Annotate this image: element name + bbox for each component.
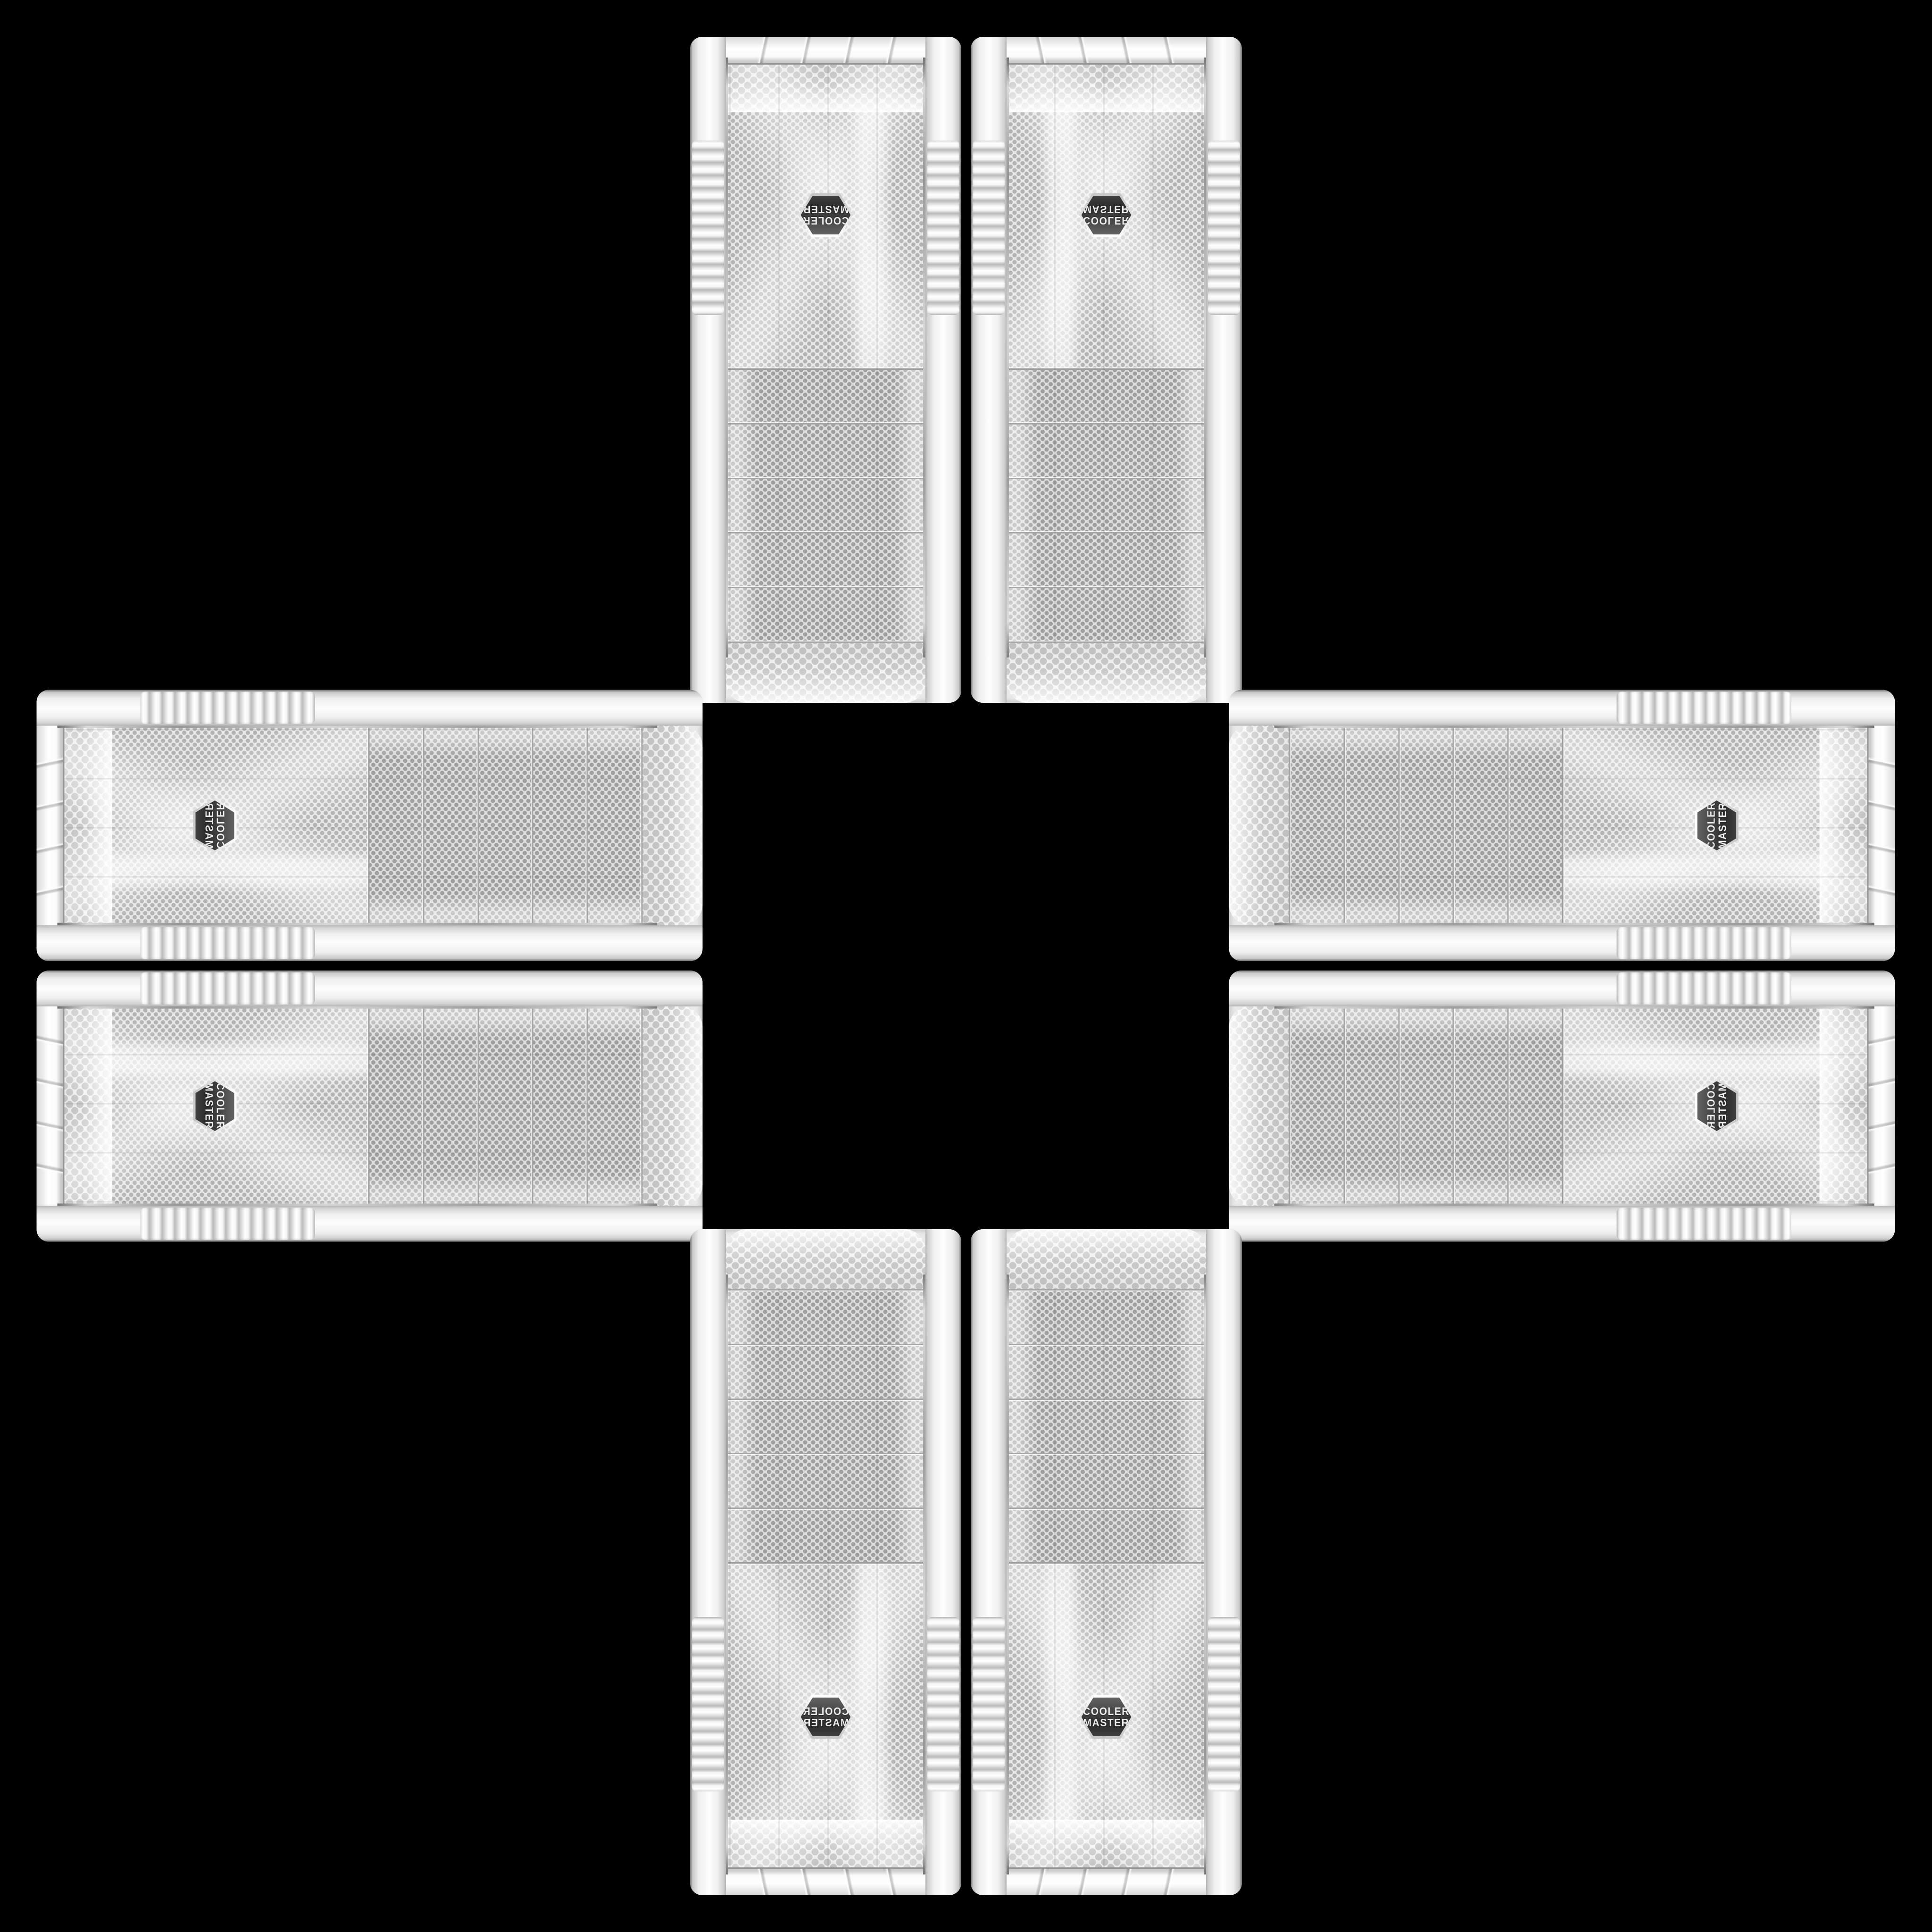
chrome-trim-left xyxy=(1007,1274,1009,1874)
cooler-master-badge-face: COOLER MASTER xyxy=(1082,1698,1132,1736)
drive-bay-slat xyxy=(1007,533,1206,588)
bottom-base-bar xyxy=(726,37,925,65)
front-face: COOLER MASTER xyxy=(726,37,925,703)
front-face: COOLER MASTER xyxy=(1229,1007,1895,1206)
badge-line-cooler: COOLER xyxy=(215,802,226,849)
drive-bay-slat xyxy=(726,533,925,588)
drive-bay-slat xyxy=(424,1007,479,1206)
grip-ribs xyxy=(1617,1208,1791,1240)
chrome-trim-right xyxy=(58,726,658,728)
case-front-panel-left-top: COOLER MASTER xyxy=(37,690,703,961)
chrome-trim-left xyxy=(58,1007,658,1009)
drive-bay-slat xyxy=(726,1399,925,1453)
grip-ribs xyxy=(927,141,959,315)
badge-line-cooler: COOLER xyxy=(215,1083,226,1130)
curved-mesh-cap xyxy=(643,726,703,925)
cooler-master-badge-face: COOLER MASTER xyxy=(1082,196,1132,234)
chrome-trim-right xyxy=(1274,726,1874,728)
badge-line-master: MASTER xyxy=(803,204,849,215)
chrome-trim-right xyxy=(58,1204,658,1206)
grip-ribs xyxy=(692,1617,724,1791)
bottom-base-bar xyxy=(37,1007,65,1206)
bottom-base-bar xyxy=(1867,1007,1895,1206)
drive-bay-slat xyxy=(1007,1399,1206,1453)
grip-ribs xyxy=(141,1208,315,1240)
case-front-panel-left-bottom: COOLER MASTER xyxy=(37,971,703,1242)
drive-bay-slat xyxy=(726,1289,925,1344)
drive-bay-slat xyxy=(1507,726,1562,925)
bottom-base-bar xyxy=(726,1867,925,1895)
curved-mesh-cap xyxy=(1229,726,1289,925)
drive-bay-slats xyxy=(726,1289,925,1562)
badge-line-cooler: COOLER xyxy=(1706,802,1717,849)
cooler-master-badge-face: COOLER MASTER xyxy=(196,1081,234,1131)
drive-bay-slat xyxy=(370,726,425,925)
cooler-master-badge-face: COOLER MASTER xyxy=(1698,1081,1736,1131)
lower-mesh-strip xyxy=(1820,726,1870,925)
chrome-trim-left xyxy=(1007,58,1009,658)
chrome-trim-left xyxy=(1274,1007,1874,1009)
bottom-base-bar xyxy=(1867,726,1895,925)
badge-line-master: MASTER xyxy=(204,802,215,849)
drive-bay-slats xyxy=(370,1007,643,1206)
cooler-master-badge-face: COOLER MASTER xyxy=(1698,800,1736,850)
front-face: COOLER MASTER xyxy=(1007,37,1206,703)
side-rail-right xyxy=(690,37,726,703)
badge-line-master: MASTER xyxy=(803,1717,849,1728)
panel-collage-scene: COOLER MASTER xyxy=(0,0,1932,1932)
front-face: COOLER MASTER xyxy=(726,1229,925,1895)
drive-bay-slat xyxy=(726,588,925,643)
chrome-trim-right xyxy=(726,58,728,658)
grip-ribs xyxy=(973,141,1005,315)
drive-bay-slat xyxy=(1007,425,1206,479)
grip-ribs xyxy=(1208,1617,1240,1791)
grip-ribs xyxy=(141,973,315,1005)
chrome-trim-left xyxy=(923,1274,925,1874)
curved-mesh-cap xyxy=(726,643,925,703)
side-rail-right xyxy=(1229,690,1895,726)
drive-bay-slat xyxy=(726,370,925,425)
drive-bay-slat xyxy=(726,425,925,479)
front-face: COOLER MASTER xyxy=(37,1007,703,1206)
badge-line-cooler: COOLER xyxy=(1083,1706,1130,1717)
curved-mesh-cap xyxy=(1229,1007,1289,1206)
drive-bay-slat xyxy=(588,726,643,925)
grip-ribs xyxy=(141,927,315,959)
bottom-base-bar xyxy=(1007,1867,1206,1895)
drive-bay-slats xyxy=(726,370,925,643)
grip-ribs xyxy=(1617,692,1791,724)
badge-line-cooler: COOLER xyxy=(1083,215,1130,226)
case-front-panel-bottom-left: COOLER MASTER xyxy=(690,1229,961,1895)
drive-bay-slat xyxy=(588,1007,643,1206)
case-front-panel-right-top: COOLER MASTER xyxy=(1229,690,1895,961)
drive-bay-slats xyxy=(1289,726,1562,925)
case-front-panel-bottom-right: COOLER MASTER xyxy=(971,1229,1242,1895)
drive-bay-slat xyxy=(370,1007,425,1206)
drive-bay-slat xyxy=(1007,1507,1206,1562)
cooler-master-badge-face: COOLER MASTER xyxy=(801,1698,851,1736)
drive-bay-slat xyxy=(479,726,533,925)
chrome-trim-left xyxy=(923,58,925,658)
side-rail-left xyxy=(1229,971,1895,1007)
lower-mesh-strip xyxy=(726,62,925,112)
drive-bay-slat xyxy=(1453,1007,1507,1206)
drive-bay-slat xyxy=(424,726,479,925)
lower-mesh-strip xyxy=(62,1007,112,1206)
badge-line-master: MASTER xyxy=(1717,1083,1728,1129)
side-rail-right xyxy=(37,1206,703,1242)
grip-ribs xyxy=(1208,141,1240,315)
drive-bay-slat xyxy=(1507,1007,1562,1206)
chrome-trim-right xyxy=(1204,1274,1206,1874)
drive-bay-slat xyxy=(1007,370,1206,425)
drive-bay-slat xyxy=(1343,1007,1398,1206)
cooler-master-badge-face: COOLER MASTER xyxy=(196,800,234,850)
drive-bay-slat xyxy=(1007,1453,1206,1507)
drive-bay-slats xyxy=(370,726,643,925)
front-face: COOLER MASTER xyxy=(37,726,703,925)
drive-bay-slats xyxy=(1289,1007,1562,1206)
drive-bay-slat xyxy=(1007,479,1206,534)
drive-bay-slat xyxy=(479,1007,533,1206)
curved-mesh-cap xyxy=(1007,643,1206,703)
side-rail-left xyxy=(37,925,703,961)
drive-bay-slats xyxy=(1007,370,1206,643)
side-rail-left xyxy=(925,37,961,703)
side-rail-right xyxy=(1229,1206,1895,1242)
chrome-trim-left xyxy=(58,923,658,925)
drive-bay-slat xyxy=(1398,726,1453,925)
grip-ribs xyxy=(692,141,724,315)
cooler-master-badge-face: COOLER MASTER xyxy=(801,196,851,234)
drive-bay-slat xyxy=(726,1507,925,1562)
side-rail-right xyxy=(1206,37,1242,703)
side-rail-right xyxy=(690,1229,726,1895)
front-face: COOLER MASTER xyxy=(1229,726,1895,925)
drive-bay-slat xyxy=(1453,726,1507,925)
chrome-trim-right xyxy=(1204,58,1206,658)
drive-bay-slat xyxy=(1007,1289,1206,1344)
drive-bay-slat xyxy=(1007,1344,1206,1399)
badge-line-cooler: COOLER xyxy=(802,215,849,226)
side-rail-left xyxy=(37,971,703,1007)
drive-bay-slat xyxy=(1289,1007,1344,1206)
lower-mesh-strip xyxy=(62,726,112,925)
bottom-base-bar xyxy=(1007,37,1206,65)
lower-mesh-strip xyxy=(1007,1820,1206,1870)
drive-bay-slat xyxy=(1289,726,1344,925)
drive-bay-slat xyxy=(533,726,588,925)
lower-mesh-strip xyxy=(1007,62,1206,112)
front-face: COOLER MASTER xyxy=(1007,1229,1206,1895)
side-rail-right xyxy=(37,690,703,726)
side-rail-left xyxy=(1229,925,1895,961)
drive-bay-slat xyxy=(533,1007,588,1206)
grip-ribs xyxy=(927,1617,959,1791)
drive-bay-slat xyxy=(1343,726,1398,925)
case-front-panel-top-left: COOLER MASTER xyxy=(690,37,961,703)
drive-bay-slats xyxy=(1007,1289,1206,1562)
side-rail-left xyxy=(971,37,1007,703)
badge-line-master: MASTER xyxy=(1717,802,1728,849)
drive-bay-slat xyxy=(1398,1007,1453,1206)
badge-line-master: MASTER xyxy=(1083,204,1130,215)
badge-line-master: MASTER xyxy=(204,1083,215,1129)
badge-line-master: MASTER xyxy=(1083,1717,1130,1728)
bottom-base-bar xyxy=(37,726,65,925)
lower-mesh-strip xyxy=(1820,1007,1870,1206)
grip-ribs xyxy=(141,692,315,724)
side-rail-right xyxy=(1206,1229,1242,1895)
grip-ribs xyxy=(1617,973,1791,1005)
curved-mesh-cap xyxy=(1007,1229,1206,1289)
chrome-trim-right xyxy=(726,1274,728,1874)
case-front-panel-right-bottom: COOLER MASTER xyxy=(1229,971,1895,1242)
side-rail-left xyxy=(971,1229,1007,1895)
drive-bay-slat xyxy=(726,479,925,534)
grip-ribs xyxy=(973,1617,1005,1791)
badge-line-cooler: COOLER xyxy=(1706,1083,1717,1130)
case-front-panel-top-right: COOLER MASTER xyxy=(971,37,1242,703)
chrome-trim-right xyxy=(1274,1204,1874,1206)
drive-bay-slat xyxy=(726,1344,925,1399)
lower-mesh-strip xyxy=(726,1820,925,1870)
chrome-trim-left xyxy=(1274,923,1874,925)
curved-mesh-cap xyxy=(726,1229,925,1289)
grip-ribs xyxy=(1617,927,1791,959)
drive-bay-slat xyxy=(726,1453,925,1507)
curved-mesh-cap xyxy=(643,1007,703,1206)
drive-bay-slat xyxy=(1007,588,1206,643)
side-rail-left xyxy=(925,1229,961,1895)
badge-line-cooler: COOLER xyxy=(802,1706,849,1717)
